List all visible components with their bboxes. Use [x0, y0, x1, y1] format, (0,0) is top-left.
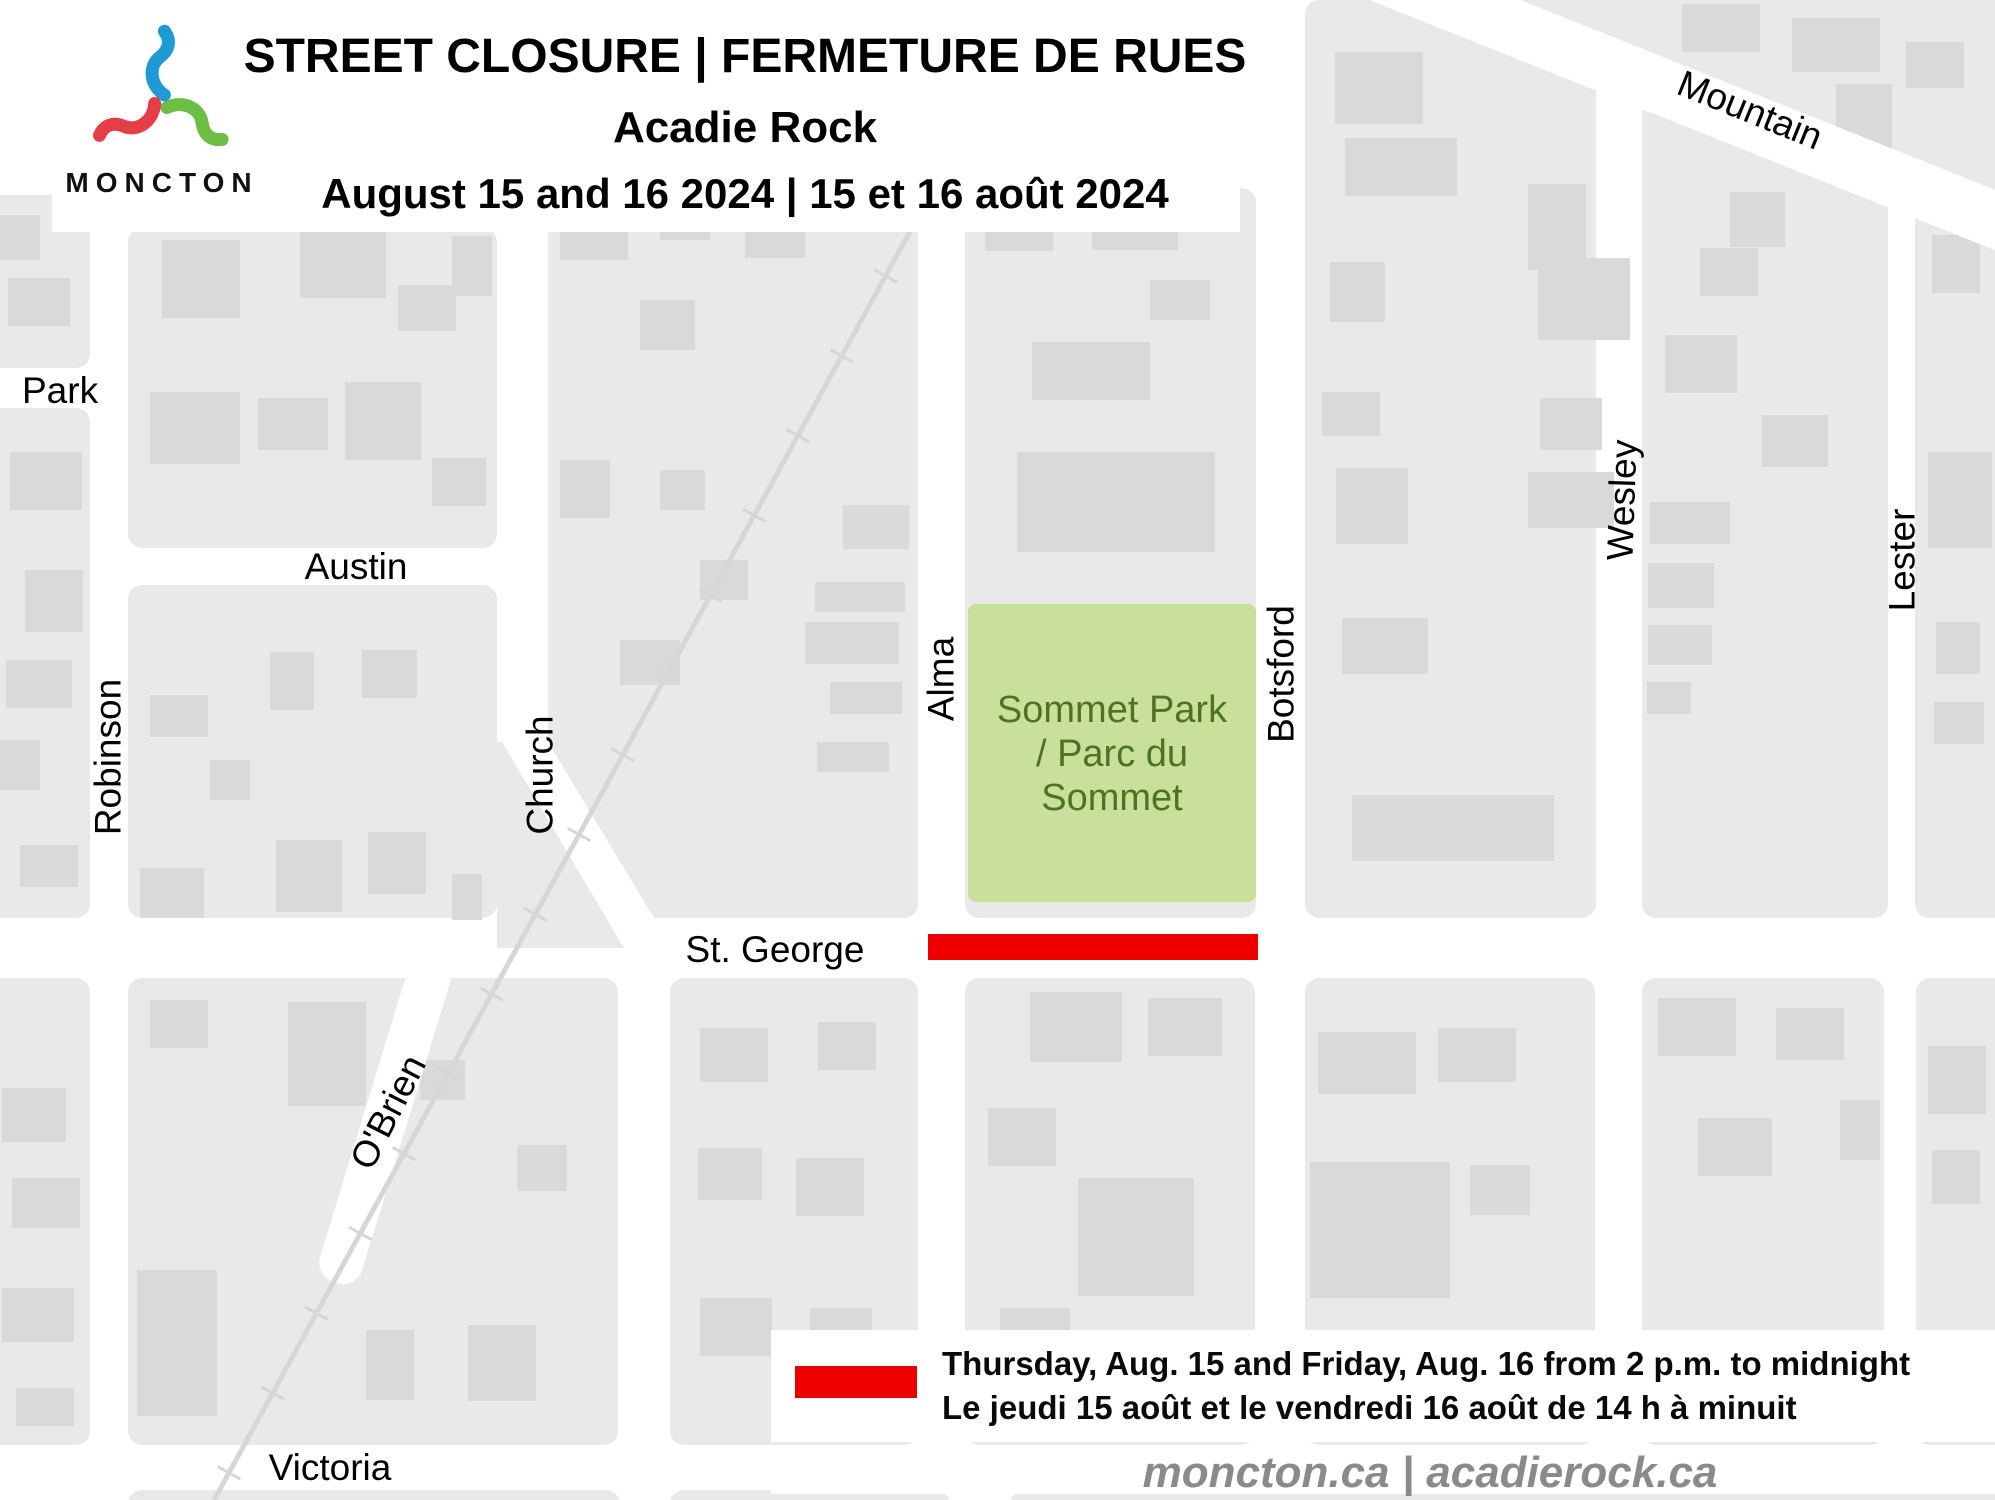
- building: [1928, 452, 1992, 548]
- building: [1776, 1008, 1844, 1060]
- building: [843, 505, 909, 549]
- building: [1730, 192, 1785, 247]
- building: [1032, 342, 1150, 400]
- building: [150, 392, 240, 464]
- building: [1336, 468, 1408, 544]
- footer-panel: moncton.ca | acadierock.ca: [771, 1448, 1995, 1497]
- building: [162, 240, 240, 318]
- building: [700, 1028, 768, 1082]
- building: [817, 742, 889, 772]
- building: [0, 740, 40, 790]
- building: [1700, 248, 1758, 296]
- street-label-victoria: Victoria: [269, 1447, 392, 1488]
- building: [362, 650, 417, 698]
- street-label-austin: Austin: [305, 546, 408, 587]
- building: [1310, 1162, 1450, 1298]
- building: [12, 1178, 80, 1228]
- street-label-church: Church: [520, 715, 561, 834]
- legend-panel: Thursday, Aug. 15 and Friday, Aug. 16 fr…: [771, 1330, 1995, 1442]
- building: [20, 845, 78, 887]
- building: [140, 868, 204, 918]
- building: [1934, 702, 1984, 744]
- building: [1936, 622, 1980, 674]
- building: [258, 398, 328, 450]
- building: [1330, 262, 1385, 322]
- park-label-line1: Sommet Park: [997, 689, 1228, 731]
- building: [1538, 258, 1630, 340]
- building: [300, 232, 386, 298]
- building: [1932, 235, 1980, 293]
- building: [276, 840, 342, 912]
- building: [1658, 998, 1736, 1056]
- building: [270, 652, 314, 710]
- building: [1030, 992, 1122, 1062]
- building: [288, 1002, 366, 1106]
- building: [1840, 1100, 1880, 1160]
- city-block: [128, 1490, 620, 1500]
- header-title-line2: Acadie Rock: [613, 103, 878, 152]
- logo-wordmark: MONCTON: [65, 167, 258, 198]
- building: [1345, 138, 1457, 196]
- building: [1318, 1032, 1416, 1094]
- header-title-line1: STREET CLOSURE | FERMETURE DE RUES: [244, 30, 1247, 83]
- building: [137, 1270, 217, 1416]
- building: [1648, 563, 1714, 608]
- building: [1148, 998, 1222, 1056]
- building: [1698, 1118, 1772, 1176]
- closure-segment: [928, 934, 1258, 960]
- building: [640, 300, 695, 350]
- park-label-line2: / Parc du: [1036, 733, 1188, 775]
- building: [517, 1145, 567, 1191]
- legend-line-fr: Le jeudi 15 août et le vendredi 16 août …: [942, 1389, 1797, 1426]
- building: [2, 1088, 66, 1142]
- building: [1540, 398, 1602, 450]
- building: [700, 1298, 772, 1356]
- street-label-alma: Alma: [921, 636, 962, 721]
- building: [796, 1158, 864, 1216]
- building: [1335, 52, 1423, 124]
- legend-closure-swatch: [795, 1366, 917, 1398]
- building: [6, 660, 72, 708]
- header-panel: MONCTON STREET CLOSURE | FERMETURE DE RU…: [52, 15, 1246, 232]
- building: [1665, 335, 1737, 393]
- building: [1932, 1150, 1980, 1204]
- building: [150, 695, 208, 737]
- building: [1470, 1165, 1530, 1215]
- building: [345, 382, 421, 460]
- building: [1906, 42, 1964, 88]
- header-title-line3: August 15 and 16 2024 | 15 et 16 août 20…: [321, 170, 1169, 218]
- building: [1762, 415, 1828, 467]
- building: [16, 1388, 74, 1426]
- building: [1342, 618, 1428, 674]
- building: [698, 1148, 762, 1200]
- building: [468, 1325, 536, 1401]
- building: [830, 682, 902, 714]
- building: [1792, 18, 1880, 72]
- building: [1017, 452, 1215, 552]
- building: [150, 1000, 208, 1048]
- street-label-park: Park: [22, 370, 99, 411]
- building: [1682, 4, 1760, 52]
- park-label-line3: Sommet: [1041, 777, 1183, 819]
- building: [432, 458, 486, 506]
- building: [368, 832, 426, 894]
- street-label-st-george: St. George: [686, 929, 865, 970]
- building: [818, 1022, 876, 1070]
- building: [1648, 625, 1712, 665]
- building: [25, 570, 83, 632]
- building: [452, 236, 492, 296]
- footer-websites: moncton.ca | acadierock.ca: [1143, 1448, 1718, 1497]
- building: [815, 582, 905, 612]
- building: [1322, 392, 1380, 436]
- building: [1650, 502, 1730, 544]
- building: [805, 622, 899, 664]
- building: [660, 470, 705, 510]
- street-label-lester: Lester: [1882, 509, 1923, 612]
- building: [1528, 184, 1586, 270]
- street-closure-map: Park Austin Robinson Church Alma Botsfor…: [0, 0, 1995, 1500]
- building: [366, 1330, 414, 1400]
- building: [560, 460, 610, 518]
- street-label-botsford: Botsford: [1261, 605, 1302, 743]
- building: [398, 285, 456, 331]
- building: [210, 760, 250, 800]
- building: [452, 874, 482, 920]
- city-block: [1305, 0, 1596, 918]
- building: [0, 215, 40, 260]
- building: [988, 1108, 1056, 1166]
- street-label-wesley: Wesley: [1599, 439, 1644, 561]
- legend-line-en: Thursday, Aug. 15 and Friday, Aug. 16 fr…: [942, 1345, 1910, 1382]
- building: [1438, 1028, 1516, 1082]
- building: [1078, 1178, 1194, 1296]
- building: [1352, 795, 1554, 861]
- building: [1928, 1046, 1986, 1114]
- building: [2, 1288, 74, 1342]
- building: [8, 278, 70, 326]
- building: [10, 452, 82, 510]
- street-label-robinson: Robinson: [88, 679, 129, 835]
- building: [1647, 682, 1691, 714]
- building: [1150, 280, 1210, 320]
